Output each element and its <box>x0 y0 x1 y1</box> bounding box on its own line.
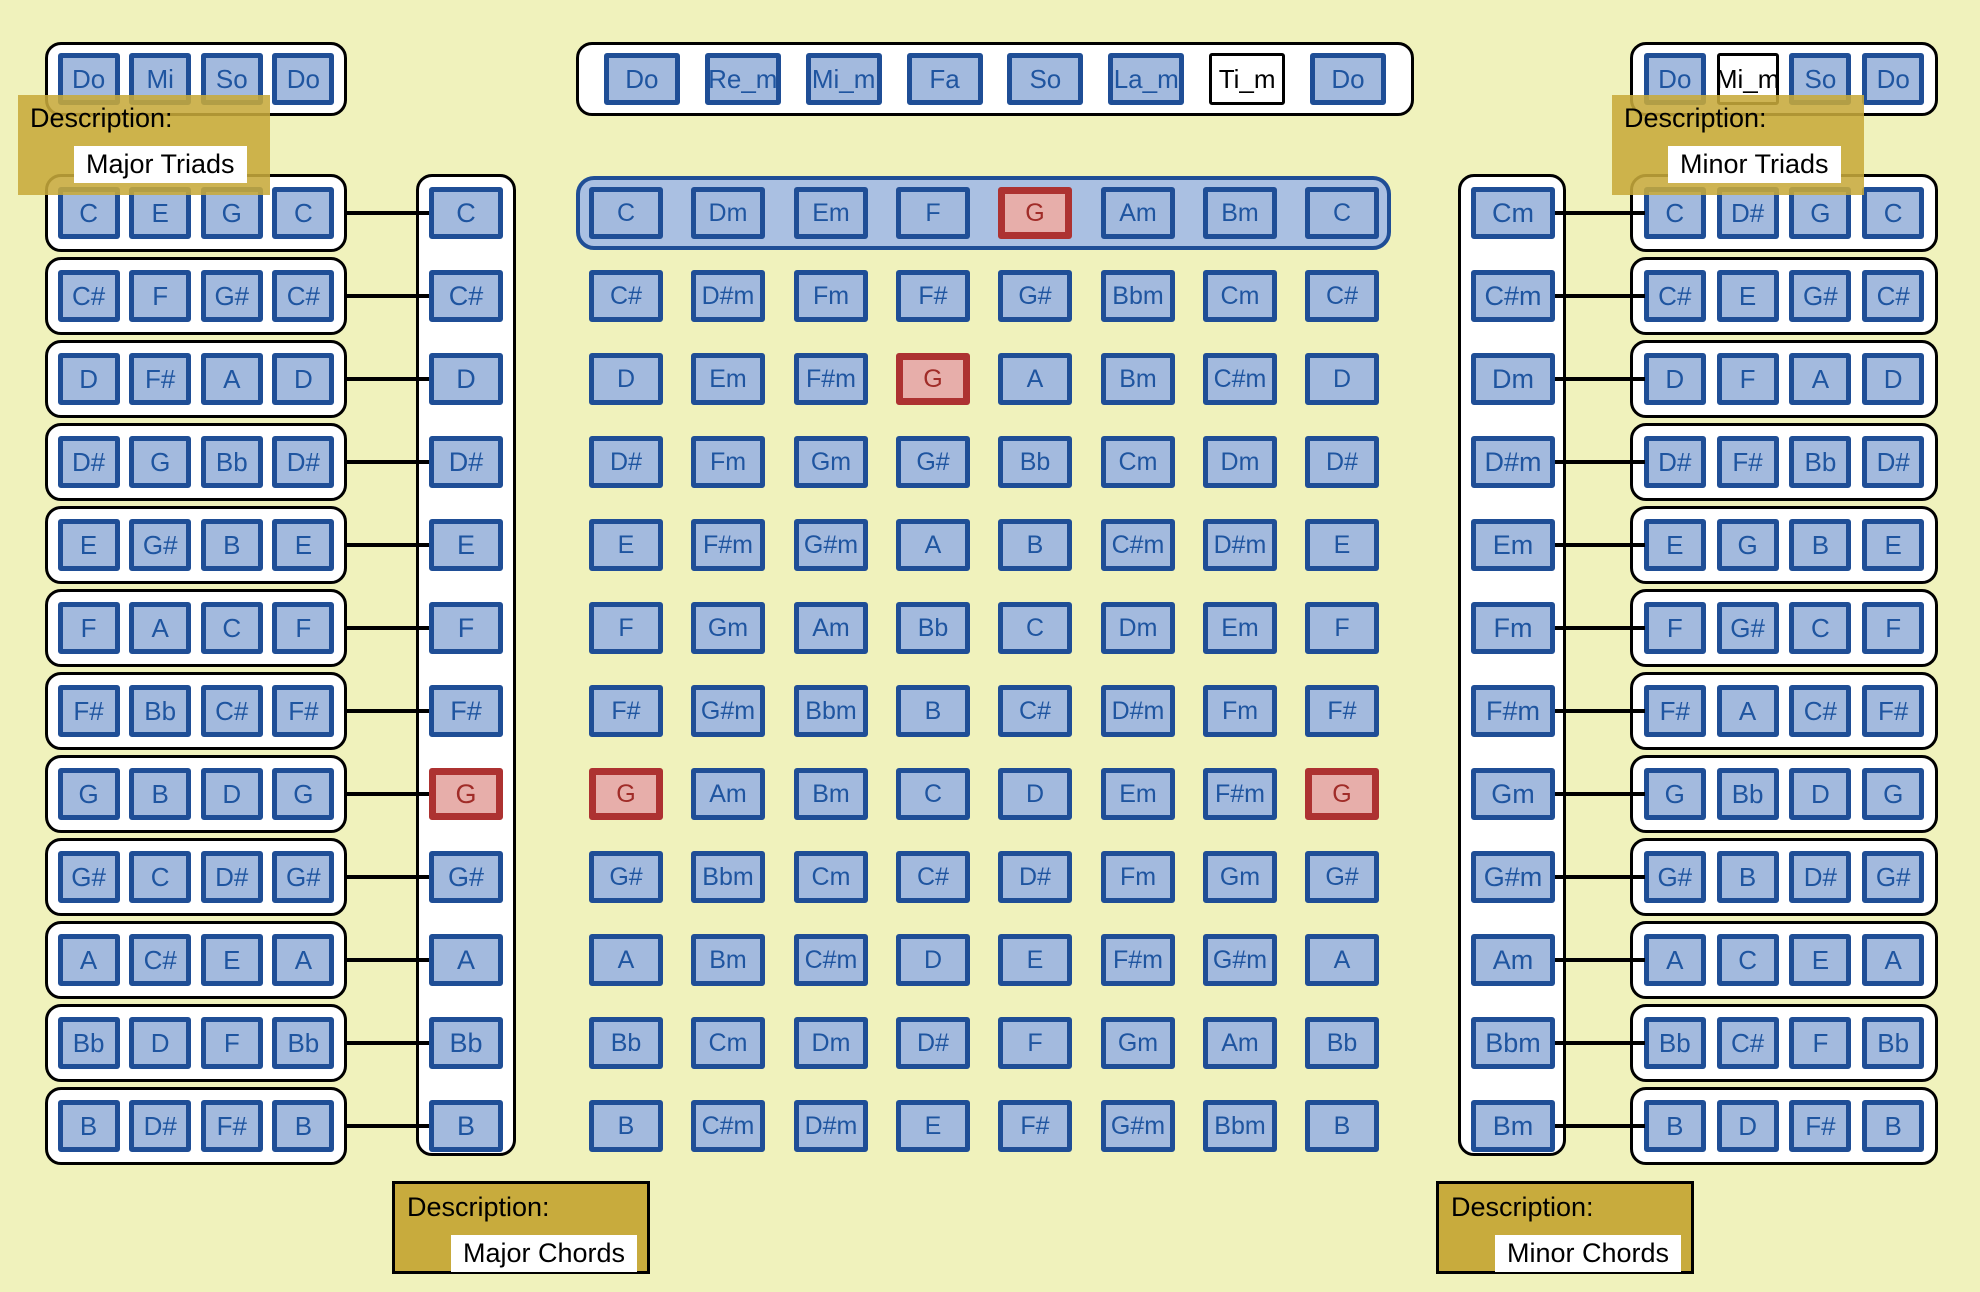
grid-chord-A[interactable]: A <box>896 519 970 571</box>
grid-chord-D#[interactable]: D# <box>589 436 663 488</box>
grid-chord-A[interactable]: A <box>589 934 663 986</box>
triad-note-A[interactable]: A <box>1644 934 1706 986</box>
grid-chord-C[interactable]: C <box>589 187 663 239</box>
triad-note-A[interactable]: A <box>58 934 120 986</box>
grid-chord-C#m[interactable]: C#m <box>794 934 868 986</box>
triad-note-F[interactable]: F <box>201 1017 263 1069</box>
grid-chord-Gm[interactable]: Gm <box>1203 851 1277 903</box>
triad-note-C[interactable]: C <box>272 187 334 239</box>
connector-line <box>1555 543 1645 547</box>
triad-note-F#[interactable]: F# <box>272 685 334 737</box>
triad-note-B[interactable]: B <box>1789 519 1851 571</box>
triad-note-G#[interactable]: G# <box>1644 851 1706 903</box>
triad-note-G#[interactable]: G# <box>201 270 263 322</box>
description-title: Description: <box>407 1192 635 1223</box>
triad-note-F[interactable]: F <box>129 270 191 322</box>
minor-triad-row-A: ACEA <box>1630 921 1938 999</box>
scale-degree-Re_m[interactable]: Re_m <box>705 53 781 105</box>
triad-note-Bb[interactable]: Bb <box>1789 436 1851 488</box>
triad-note-Bb[interactable]: Bb <box>201 436 263 488</box>
triad-note-G[interactable]: G <box>272 768 334 820</box>
connector-line <box>347 1124 431 1128</box>
triad-note-G[interactable]: G <box>1717 519 1779 571</box>
triad-note-G#[interactable]: G# <box>1789 270 1851 322</box>
connector-line <box>1555 294 1645 298</box>
triad-note-B[interactable]: B <box>1717 851 1779 903</box>
grid-chord-F#m[interactable]: F#m <box>794 353 868 405</box>
grid-chord-D#m[interactable]: D#m <box>1203 519 1277 571</box>
grid-chord-B[interactable]: B <box>589 1100 663 1152</box>
triad-note-F[interactable]: F <box>1862 602 1924 654</box>
scale-degree-Do[interactable]: Do <box>1310 53 1386 105</box>
connector-line <box>1555 875 1645 879</box>
triad-note-F#[interactable]: F# <box>1644 685 1706 737</box>
triad-note-D#[interactable]: D# <box>1789 851 1851 903</box>
minor-chord-Dm[interactable]: Dm <box>1471 353 1555 405</box>
description-value: Minor Chords <box>1495 1235 1681 1272</box>
grid-chord-G#m[interactable]: G#m <box>1203 934 1277 986</box>
tooltip-minor-triads: Description: Minor Triads <box>1612 95 1864 195</box>
triad-note-F[interactable]: F <box>1717 353 1779 405</box>
major-triad-row-G: GBDG <box>45 755 347 833</box>
grid-chord-Gm[interactable]: Gm <box>794 436 868 488</box>
grid-chord-G#[interactable]: G# <box>896 436 970 488</box>
grid-chord-Em[interactable]: Em <box>691 353 765 405</box>
minor-chord-D#m[interactable]: D#m <box>1471 436 1555 488</box>
triad-note-E[interactable]: E <box>1644 519 1706 571</box>
triad-note-D[interactable]: D <box>129 1017 191 1069</box>
scale-degree-Ti_m[interactable]: Ti_m <box>1209 53 1285 105</box>
grid-chord-D[interactable]: D <box>1305 353 1379 405</box>
grid-chord-C[interactable]: C <box>896 768 970 820</box>
triad-note-G[interactable]: G <box>129 436 191 488</box>
grid-chord-Em[interactable]: Em <box>794 187 868 239</box>
grid-chord-G#m[interactable]: G#m <box>794 519 868 571</box>
grid-chord-G[interactable]: G <box>1305 768 1379 820</box>
connector-line <box>347 792 431 796</box>
connector-line <box>347 377 431 381</box>
triad-note-Bb[interactable]: Bb <box>129 685 191 737</box>
connector-line <box>1555 792 1645 796</box>
scale-degree-Do[interactable]: Do <box>604 53 680 105</box>
connector-line <box>1555 1041 1645 1045</box>
description-box-minor-chords: Description: Minor Chords <box>1436 1181 1694 1274</box>
grid-chord-B[interactable]: B <box>998 519 1072 571</box>
triad-note-F[interactable]: F <box>1789 1017 1851 1069</box>
triad-note-C[interactable]: C <box>1862 187 1924 239</box>
major-chord-Bb[interactable]: Bb <box>429 1017 503 1069</box>
major-chord-A[interactable]: A <box>429 934 503 986</box>
connector-line <box>347 875 431 879</box>
grid-chord-F#[interactable]: F# <box>998 1100 1072 1152</box>
tooltip-value: Major Triads <box>74 146 247 183</box>
triad-note-G#[interactable]: G# <box>272 851 334 903</box>
minor-chord-F#m[interactable]: F#m <box>1471 685 1555 737</box>
connector-line <box>1555 377 1645 381</box>
triad-note-B[interactable]: B <box>1644 1100 1706 1152</box>
grid-chord-Am[interactable]: Am <box>794 602 868 654</box>
minor-triad-row-B: BDF#B <box>1630 1087 1938 1165</box>
triad-note-G#[interactable]: G# <box>1717 602 1779 654</box>
grid-chord-F#[interactable]: F# <box>589 685 663 737</box>
grid-chord-Am[interactable]: Am <box>691 768 765 820</box>
connector-line <box>347 460 431 464</box>
triad-note-D#[interactable]: D# <box>201 851 263 903</box>
triad-note-B[interactable]: B <box>58 1100 120 1152</box>
minor-chord-Fm[interactable]: Fm <box>1471 602 1555 654</box>
grid-chord-Bbm[interactable]: Bbm <box>1101 270 1175 322</box>
triad-note-C#[interactable]: C# <box>1862 270 1924 322</box>
description-value: Major Chords <box>451 1235 637 1272</box>
major-chord-G[interactable]: G <box>429 768 503 820</box>
triad-note-D[interactable]: D <box>272 353 334 405</box>
triad-note-F#[interactable]: F# <box>58 685 120 737</box>
grid-chord-A[interactable]: A <box>1305 934 1379 986</box>
grid-chord-Cm[interactable]: Cm <box>691 1017 765 1069</box>
grid-chord-D#m[interactable]: D#m <box>1101 685 1175 737</box>
grid-chord-Cm[interactable]: Cm <box>1203 270 1277 322</box>
connector-line <box>347 543 431 547</box>
triad-note-B[interactable]: B <box>201 519 263 571</box>
grid-chord-C#[interactable]: C# <box>896 851 970 903</box>
grid-chord-C#[interactable]: C# <box>1305 270 1379 322</box>
grid-chord-G[interactable]: G <box>998 187 1072 239</box>
grid-chord-F[interactable]: F <box>1305 602 1379 654</box>
grid-chord-Am[interactable]: Am <box>1101 187 1175 239</box>
minor-chord-Gm[interactable]: Gm <box>1471 768 1555 820</box>
tooltip-major-triads: Description: Major Triads <box>18 95 270 195</box>
minor-triad-row-D: DFAD <box>1630 340 1938 418</box>
triad-note-G#[interactable]: G# <box>1862 851 1924 903</box>
triad-note-F[interactable]: F <box>1644 602 1706 654</box>
triad-note-D#[interactable]: D# <box>1862 436 1924 488</box>
grid-chord-Am[interactable]: Am <box>1203 1017 1277 1069</box>
grid-chord-Cm[interactable]: Cm <box>1101 436 1175 488</box>
major-chord-D#[interactable]: D# <box>429 436 503 488</box>
grid-chord-Em[interactable]: Em <box>1101 768 1175 820</box>
grid-chord-G#[interactable]: G# <box>998 270 1072 322</box>
tooltip-title: Description: <box>30 103 258 134</box>
triad-note-C[interactable]: C <box>201 602 263 654</box>
major-chord-G#[interactable]: G# <box>429 851 503 903</box>
triad-note-Bb[interactable]: Bb <box>272 1017 334 1069</box>
scale-degree-So[interactable]: So <box>1007 53 1083 105</box>
grid-chord-Bm[interactable]: Bm <box>794 768 868 820</box>
triad-note-A[interactable]: A <box>1717 685 1779 737</box>
major-triad-row-G#: G#CD#G# <box>45 838 347 916</box>
triad-note-C#[interactable]: C# <box>1789 685 1851 737</box>
grid-chord-Bbm[interactable]: Bbm <box>691 851 765 903</box>
description-title: Description: <box>1451 1192 1679 1223</box>
grid-chord-A[interactable]: A <box>998 353 1072 405</box>
triad-note-F#[interactable]: F# <box>129 353 191 405</box>
minor-chord-Am[interactable]: Am <box>1471 934 1555 986</box>
grid-chord-Fm[interactable]: Fm <box>691 436 765 488</box>
grid-chord-Gm[interactable]: Gm <box>1101 1017 1175 1069</box>
grid-chord-C#[interactable]: C# <box>998 685 1072 737</box>
tooltip-value: Minor Triads <box>1668 146 1841 183</box>
grid-chord-Dm[interactable]: Dm <box>691 187 765 239</box>
grid-chord-E[interactable]: E <box>589 519 663 571</box>
minor-triad-row-E: EGBE <box>1630 506 1938 584</box>
triad-note-D[interactable]: D <box>201 768 263 820</box>
scale-degree-Mi_m[interactable]: Mi_m <box>806 53 882 105</box>
scale-degree-Do[interactable]: Do <box>272 53 334 105</box>
major-chord-F#[interactable]: F# <box>429 685 503 737</box>
triad-note-C#[interactable]: C# <box>201 685 263 737</box>
triad-note-E[interactable]: E <box>272 519 334 571</box>
grid-chord-D[interactable]: D <box>998 768 1072 820</box>
triad-note-E[interactable]: E <box>1717 270 1779 322</box>
grid-chord-E[interactable]: E <box>896 1100 970 1152</box>
tooltip-title: Description: <box>1624 103 1852 134</box>
grid-chord-Cm[interactable]: Cm <box>794 851 868 903</box>
grid-chord-D#m[interactable]: D#m <box>691 270 765 322</box>
connector-line <box>1555 626 1645 630</box>
major-triad-row-D: DF#AD <box>45 340 347 418</box>
triad-note-D[interactable]: D <box>1644 353 1706 405</box>
solfege-chords-group: DoRe_mMi_mFaSoLa_mTi_mDo <box>576 42 1414 116</box>
triad-note-F#[interactable]: F# <box>1862 685 1924 737</box>
grid-chord-Bm[interactable]: Bm <box>1203 187 1277 239</box>
grid-chord-C#[interactable]: C# <box>589 270 663 322</box>
grid-chord-B[interactable]: B <box>1305 1100 1379 1152</box>
grid-chord-B[interactable]: B <box>896 685 970 737</box>
triad-note-B[interactable]: B <box>272 1100 334 1152</box>
triad-note-F[interactable]: F <box>272 602 334 654</box>
major-triad-row-F#: F#BbC#F# <box>45 672 347 750</box>
grid-chord-C#m[interactable]: C#m <box>1101 519 1175 571</box>
major-triad-row-A: AC#EA <box>45 921 347 999</box>
triad-note-B[interactable]: B <box>129 768 191 820</box>
grid-chord-C#m[interactable]: C#m <box>691 1100 765 1152</box>
triad-note-F#[interactable]: F# <box>1717 436 1779 488</box>
major-triad-row-E: EG#BE <box>45 506 347 584</box>
triad-note-C[interactable]: C <box>129 851 191 903</box>
grid-chord-F[interactable]: F <box>998 1017 1072 1069</box>
triad-note-C#[interactable]: C# <box>1717 1017 1779 1069</box>
grid-chord-F[interactable]: F <box>589 602 663 654</box>
triad-note-D[interactable]: D <box>58 353 120 405</box>
scale-degree-Fa[interactable]: Fa <box>907 53 983 105</box>
grid-chord-Bm[interactable]: Bm <box>691 934 765 986</box>
triad-note-F[interactable]: F <box>58 602 120 654</box>
major-chord-B[interactable]: B <box>429 1100 503 1152</box>
major-triad-row-Bb: BbDFBb <box>45 1004 347 1082</box>
grid-chord-G#m[interactable]: G#m <box>691 685 765 737</box>
grid-chord-Dm[interactable]: Dm <box>1203 436 1277 488</box>
grid-chord-Fm[interactable]: Fm <box>794 270 868 322</box>
minor-chord-Em[interactable]: Em <box>1471 519 1555 571</box>
grid-chord-D#m[interactable]: D#m <box>794 1100 868 1152</box>
connector-line <box>347 958 431 962</box>
triad-note-Bb[interactable]: Bb <box>1644 1017 1706 1069</box>
grid-chord-C[interactable]: C <box>998 602 1072 654</box>
grid-chord-F#[interactable]: F# <box>896 270 970 322</box>
grid-chord-Fm[interactable]: Fm <box>1101 851 1175 903</box>
grid-chord-F[interactable]: F <box>896 187 970 239</box>
minor-chord-G#m[interactable]: G#m <box>1471 851 1555 903</box>
grid-chord-Bbm[interactable]: Bbm <box>1203 1100 1277 1152</box>
triad-note-C[interactable]: C <box>1789 602 1851 654</box>
triad-note-E[interactable]: E <box>201 934 263 986</box>
grid-chord-Bb[interactable]: Bb <box>896 602 970 654</box>
grid-chord-C#m[interactable]: C#m <box>1203 353 1277 405</box>
triad-note-D#[interactable]: D# <box>129 1100 191 1152</box>
triad-note-D#[interactable]: D# <box>272 436 334 488</box>
minor-triad-row-F: FG#CF <box>1630 589 1938 667</box>
grid-chord-G#[interactable]: G# <box>589 851 663 903</box>
triad-note-B[interactable]: B <box>1862 1100 1924 1152</box>
grid-chord-Fm[interactable]: Fm <box>1203 685 1277 737</box>
connector-line <box>1555 958 1645 962</box>
connector-line <box>347 709 431 713</box>
grid-chord-Bm[interactable]: Bm <box>1101 353 1175 405</box>
minor-triad-row-G: GBbDG <box>1630 755 1938 833</box>
grid-chord-Em[interactable]: Em <box>1203 602 1277 654</box>
triad-note-G[interactable]: G <box>1862 768 1924 820</box>
grid-chord-F#m[interactable]: F#m <box>1101 934 1175 986</box>
grid-chord-F#m[interactable]: F#m <box>691 519 765 571</box>
major-chord-E[interactable]: E <box>429 519 503 571</box>
connector-line <box>347 211 431 215</box>
grid-chord-Bbm[interactable]: Bbm <box>794 685 868 737</box>
grid-chord-D#[interactable]: D# <box>1305 436 1379 488</box>
triad-note-D[interactable]: D <box>1717 1100 1779 1152</box>
minor-triad-row-F#: F#AC#F# <box>1630 672 1938 750</box>
grid-chord-Bb[interactable]: Bb <box>589 1017 663 1069</box>
triad-note-G#[interactable]: G# <box>58 851 120 903</box>
major-chord-D[interactable]: D <box>429 353 503 405</box>
triad-note-G[interactable]: G <box>58 768 120 820</box>
connector-line <box>347 1041 431 1045</box>
scale-degree-Do[interactable]: Do <box>1862 53 1924 105</box>
triad-note-Bb[interactable]: Bb <box>1862 1017 1924 1069</box>
minor-chord-C#m[interactable]: C#m <box>1471 270 1555 322</box>
triad-note-E[interactable]: E <box>1862 519 1924 571</box>
triad-note-E[interactable]: E <box>1789 934 1851 986</box>
grid-chord-Dm[interactable]: Dm <box>1101 602 1175 654</box>
minor-triad-row-Bb: BbC#FBb <box>1630 1004 1938 1082</box>
connector-line <box>347 626 431 630</box>
triad-note-F#[interactable]: F# <box>1789 1100 1851 1152</box>
grid-chord-G[interactable]: G <box>896 353 970 405</box>
grid-chord-G#m[interactable]: G#m <box>1101 1100 1175 1152</box>
connector-line <box>1555 709 1645 713</box>
triad-note-A[interactable]: A <box>129 602 191 654</box>
major-triad-row-C#: C#FG#C# <box>45 257 347 335</box>
connector-line <box>347 294 431 298</box>
minor-chord-Bm[interactable]: Bm <box>1471 1100 1555 1152</box>
grid-chord-D[interactable]: D <box>896 934 970 986</box>
triad-note-D[interactable]: D <box>1789 768 1851 820</box>
scale-degree-La_m[interactable]: La_m <box>1108 53 1184 105</box>
triad-note-C#[interactable]: C# <box>1644 270 1706 322</box>
triad-note-C#[interactable]: C# <box>129 934 191 986</box>
major-chord-C#[interactable]: C# <box>429 270 503 322</box>
grid-chord-F#[interactable]: F# <box>1305 685 1379 737</box>
major-triad-row-F: FACF <box>45 589 347 667</box>
major-chord-C[interactable]: C <box>429 187 503 239</box>
grid-chord-G#[interactable]: G# <box>1305 851 1379 903</box>
description-box-major-chords: Description: Major Chords <box>392 1181 650 1274</box>
grid-chord-Bb[interactable]: Bb <box>1305 1017 1379 1069</box>
minor-chord-Bbm[interactable]: Bbm <box>1471 1017 1555 1069</box>
triad-note-C#[interactable]: C# <box>58 270 120 322</box>
triad-note-F#[interactable]: F# <box>201 1100 263 1152</box>
triad-note-A[interactable]: A <box>1789 353 1851 405</box>
triad-note-D#[interactable]: D# <box>58 436 120 488</box>
triad-note-C[interactable]: C <box>1717 934 1779 986</box>
minor-triad-row-C#: C#EG#C# <box>1630 257 1938 335</box>
major-triad-row-D#: D#GBbD# <box>45 423 347 501</box>
grid-chord-E[interactable]: E <box>998 934 1072 986</box>
grid-chord-Dm[interactable]: Dm <box>794 1017 868 1069</box>
grid-chord-Gm[interactable]: Gm <box>691 602 765 654</box>
triad-note-A[interactable]: A <box>272 934 334 986</box>
connector-line <box>1555 460 1645 464</box>
triad-note-C#[interactable]: C# <box>272 270 334 322</box>
grid-chord-D[interactable]: D <box>589 353 663 405</box>
triad-note-E[interactable]: E <box>58 519 120 571</box>
major-chord-F[interactable]: F <box>429 602 503 654</box>
major-triad-row-B: BD#F#B <box>45 1087 347 1165</box>
triad-note-A[interactable]: A <box>201 353 263 405</box>
connector-line <box>1555 1124 1645 1128</box>
grid-chord-C[interactable]: C <box>1305 187 1379 239</box>
triad-note-A[interactable]: A <box>1862 934 1924 986</box>
grid-chord-F#m[interactable]: F#m <box>1203 768 1277 820</box>
triad-note-Bb[interactable]: Bb <box>58 1017 120 1069</box>
triad-note-Bb[interactable]: Bb <box>1717 768 1779 820</box>
grid-chord-D#[interactable]: D# <box>896 1017 970 1069</box>
grid-chord-D#[interactable]: D# <box>998 851 1072 903</box>
grid-chord-Bb[interactable]: Bb <box>998 436 1072 488</box>
triad-note-G#[interactable]: G# <box>129 519 191 571</box>
minor-chord-Cm[interactable]: Cm <box>1471 187 1555 239</box>
minor-triad-row-G#: G#BD#G# <box>1630 838 1938 916</box>
triad-note-D[interactable]: D <box>1862 353 1924 405</box>
triad-note-D#[interactable]: D# <box>1644 436 1706 488</box>
grid-chord-E[interactable]: E <box>1305 519 1379 571</box>
grid-chord-G[interactable]: G <box>589 768 663 820</box>
connector-line <box>1555 211 1645 215</box>
minor-triad-row-D#: D#F#BbD# <box>1630 423 1938 501</box>
triad-note-G[interactable]: G <box>1644 768 1706 820</box>
